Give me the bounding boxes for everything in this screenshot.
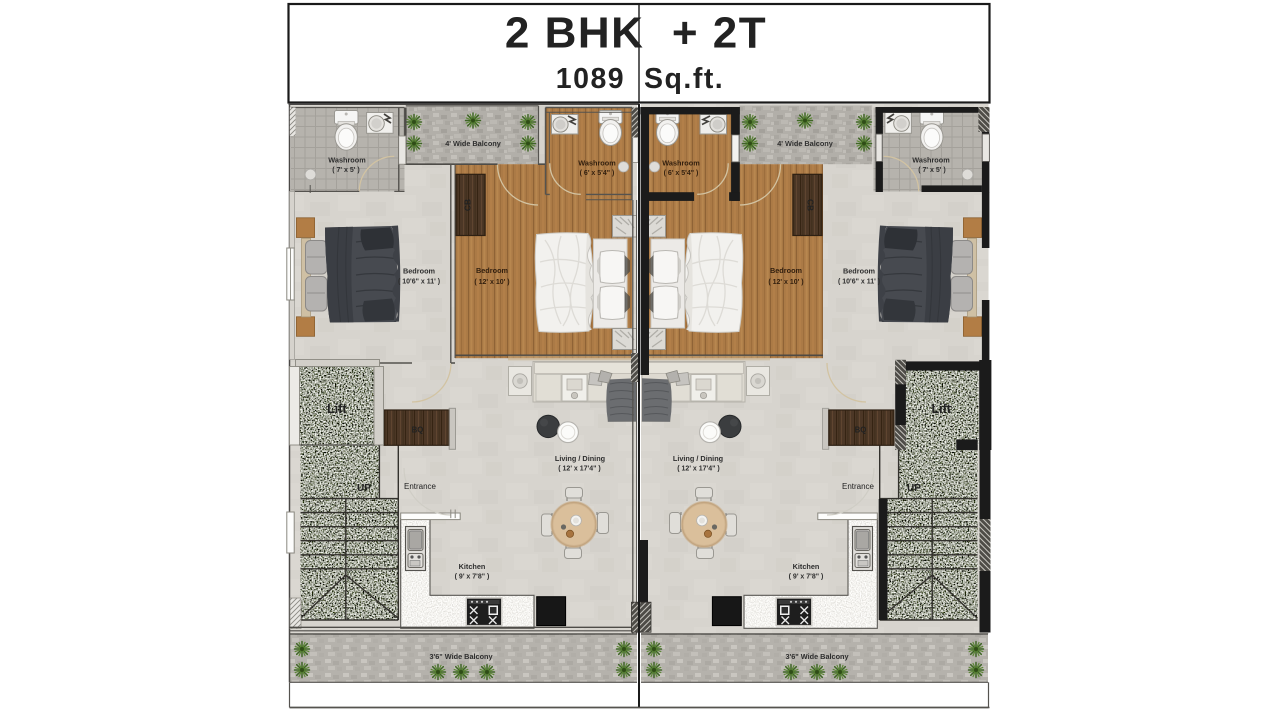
svg-text:Washroom: Washroom — [912, 156, 950, 165]
svg-text:( 9' x 7'8" ): ( 9' x 7'8" ) — [455, 573, 490, 580]
svg-text:( 10'6" x 11' ): ( 10'6" x 11' ) — [398, 278, 440, 285]
svg-text:( 7' x 5' ): ( 7' x 5' ) — [332, 167, 359, 174]
svg-text:( 12' x 17'4" ): ( 12' x 17'4" ) — [558, 466, 600, 473]
svg-text:Bedroom: Bedroom — [476, 266, 509, 275]
svg-text:Kitchen: Kitchen — [793, 562, 820, 571]
svg-text:( 6' x 5'4" ): ( 6' x 5'4" ) — [580, 170, 615, 177]
svg-text:Lift: Lift — [327, 402, 347, 416]
svg-text:BQ: BQ — [412, 426, 424, 435]
svg-text:Bedroom: Bedroom — [843, 267, 876, 276]
svg-text:( 6' x 5'4" ): ( 6' x 5'4" ) — [664, 170, 699, 177]
svg-text:Bedroom: Bedroom — [770, 266, 803, 275]
svg-text:Washroom: Washroom — [328, 156, 366, 165]
svg-text:1089 Sq.ft.: 1089 Sq.ft. — [556, 63, 724, 95]
svg-text:( 12' x 10' ): ( 12' x 10' ) — [474, 279, 509, 286]
svg-text:BQ: BQ — [855, 426, 867, 435]
svg-text:4' Wide Balcony: 4' Wide Balcony — [777, 139, 834, 148]
svg-text:3'6" Wide Balcony: 3'6" Wide Balcony — [429, 652, 493, 661]
svg-text:UP: UP — [907, 483, 921, 494]
svg-text:Living / Dining: Living / Dining — [673, 454, 723, 463]
svg-text:( 10'6" x 11' ): ( 10'6" x 11' ) — [838, 278, 880, 285]
svg-text:CB: CB — [806, 199, 816, 211]
svg-text:Washroom: Washroom — [662, 159, 700, 168]
svg-text:4' Wide Balcony: 4' Wide Balcony — [445, 139, 502, 148]
svg-text:( 12' x 17'4" ): ( 12' x 17'4" ) — [677, 466, 719, 473]
svg-text:Washroom: Washroom — [578, 159, 616, 168]
svg-text:2 BHK + 2T: 2 BHK + 2T — [505, 9, 767, 58]
svg-text:CB: CB — [463, 199, 473, 211]
svg-text:( 9' x 7'8" ): ( 9' x 7'8" ) — [789, 573, 824, 580]
svg-text:( 12' x 10' ): ( 12' x 10' ) — [768, 279, 803, 286]
svg-text:Kitchen: Kitchen — [459, 562, 486, 571]
svg-text:( 7' x 5' ): ( 7' x 5' ) — [918, 167, 945, 174]
svg-text:Living / Dining: Living / Dining — [555, 454, 605, 463]
svg-text:Entrance: Entrance — [404, 482, 437, 491]
svg-text:Lift: Lift — [931, 402, 951, 416]
svg-text:3'6" Wide Balcony: 3'6" Wide Balcony — [785, 652, 849, 661]
svg-text:UP: UP — [357, 483, 371, 494]
svg-text:Entrance: Entrance — [842, 482, 875, 491]
svg-text:Bedroom: Bedroom — [403, 267, 436, 276]
